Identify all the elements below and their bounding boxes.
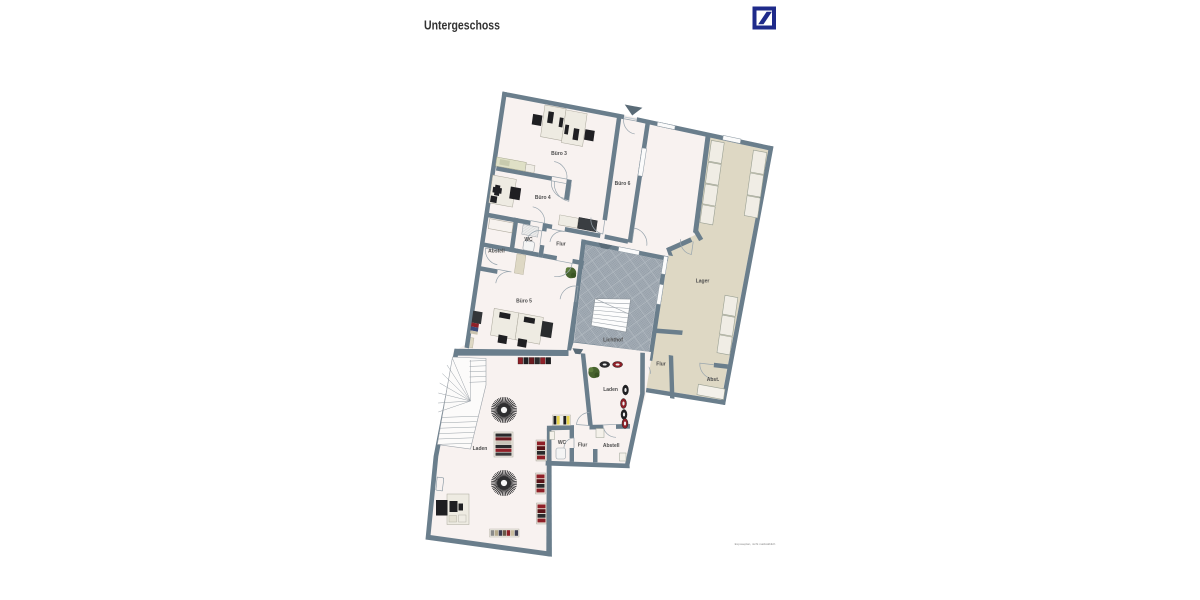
svg-text:Büro 5: Büro 5: [516, 299, 532, 305]
svg-text:Flur: Flur: [656, 362, 665, 368]
svg-text:Büro 3: Büro 3: [551, 151, 567, 157]
svg-text:Abst.: Abst.: [707, 377, 720, 383]
svg-text:Laden: Laden: [603, 387, 618, 393]
svg-text:Büro 4: Büro 4: [535, 195, 551, 201]
svg-text:Büro 6: Büro 6: [615, 181, 631, 187]
svg-text:Lichthof: Lichthof: [603, 338, 623, 344]
svg-text:Untergeschoss: Untergeschoss: [424, 18, 500, 33]
svg-text:Exposeplan, nicht maßstäblich: Exposeplan, nicht maßstäblich: [735, 542, 776, 546]
svg-text:Abstell: Abstell: [603, 443, 620, 449]
svg-text:WC: WC: [524, 237, 533, 243]
svg-text:Lager: Lager: [696, 279, 710, 285]
svg-text:WC: WC: [558, 440, 567, 446]
svg-text:Flur: Flur: [578, 443, 587, 449]
svg-text:Flur: Flur: [556, 242, 565, 248]
svg-text:Abstell: Abstell: [488, 249, 505, 255]
svg-text:Laden: Laden: [473, 446, 488, 452]
